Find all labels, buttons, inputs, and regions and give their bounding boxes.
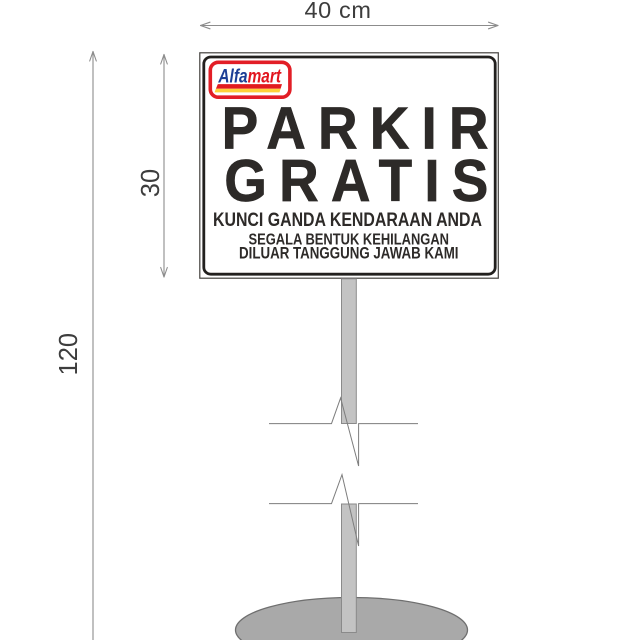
svg-text:120: 120 bbox=[55, 333, 83, 376]
svg-text:30: 30 bbox=[137, 169, 165, 197]
svg-text:Alfamart: Alfamart bbox=[218, 65, 283, 87]
svg-text:40 cm: 40 cm bbox=[305, 0, 372, 23]
svg-text:DILUAR TANGGUNG JAWAB KAMI: DILUAR TANGGUNG JAWAB KAMI bbox=[239, 244, 459, 263]
svg-text:KUNCI GANDA KENDARAAN ANDA: KUNCI GANDA KENDARAAN ANDA bbox=[213, 210, 482, 231]
